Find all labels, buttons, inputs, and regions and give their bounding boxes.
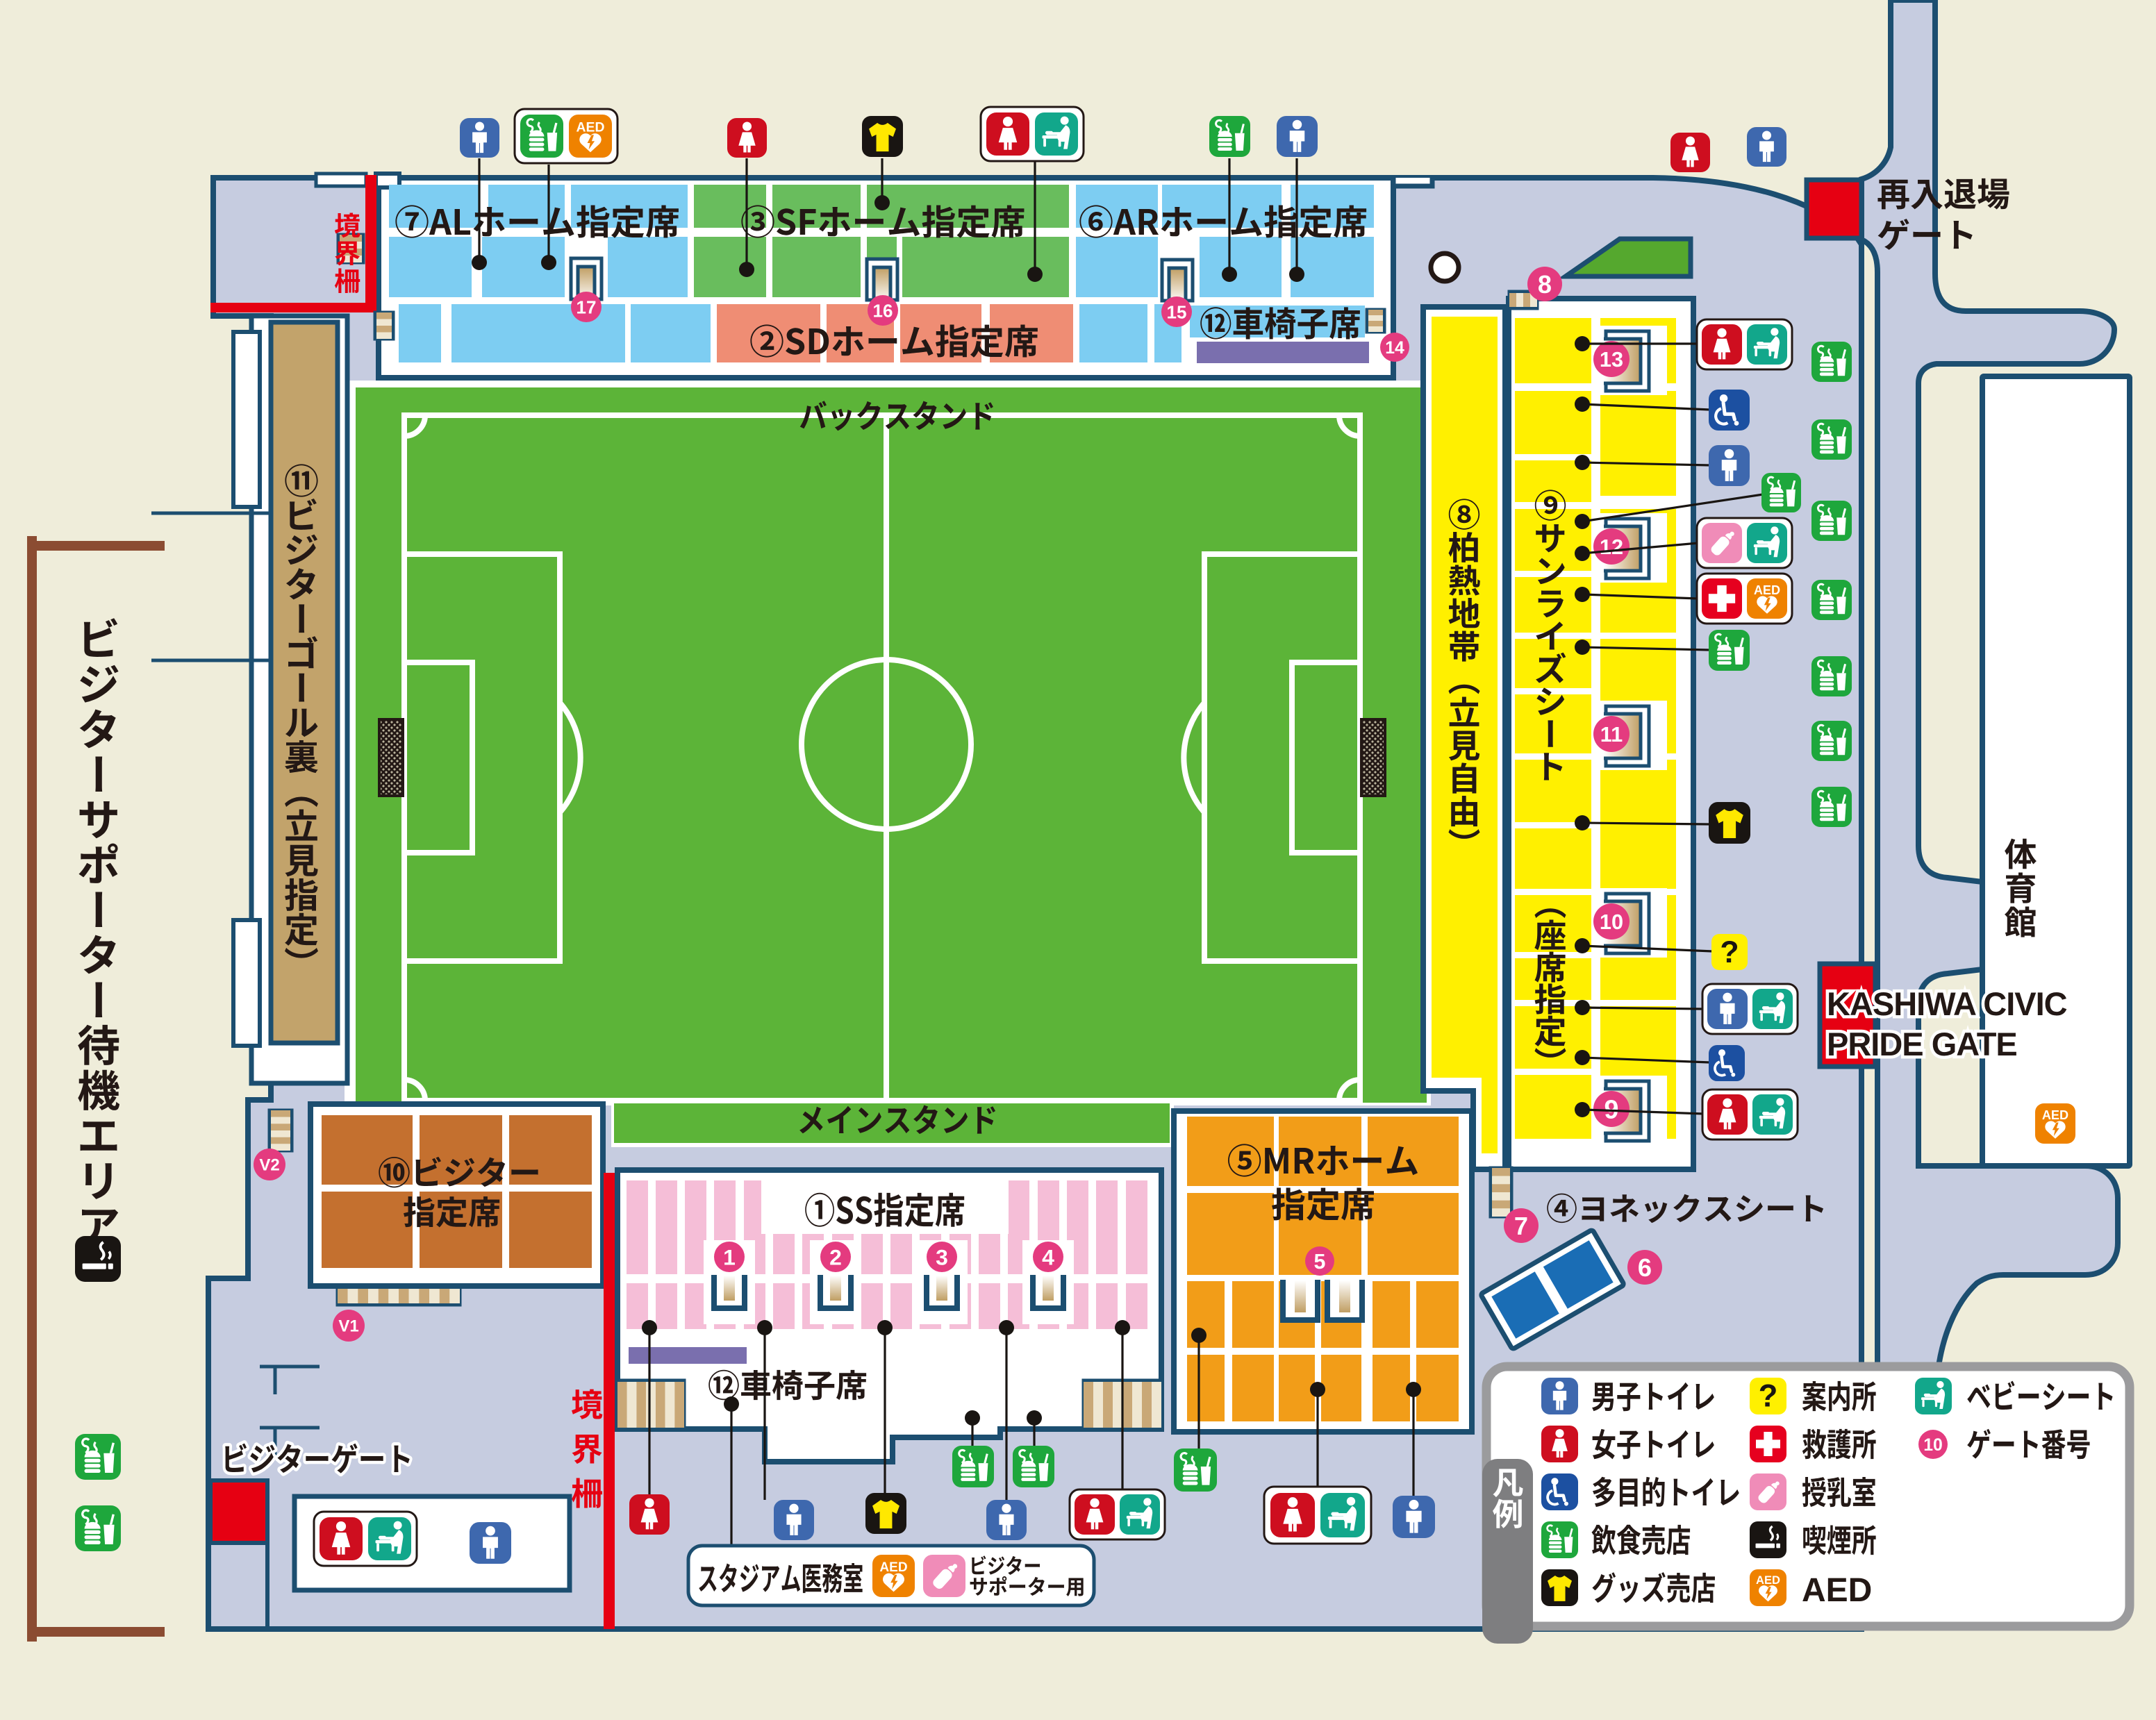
- svg-text:AED: AED: [1756, 1573, 1780, 1587]
- svg-text:AED: AED: [2042, 1108, 2068, 1122]
- svg-text:5: 5: [1314, 1250, 1326, 1274]
- svg-text:10: 10: [1923, 1436, 1943, 1455]
- svg-text:1: 1: [723, 1245, 736, 1270]
- svg-text:14: 14: [1385, 339, 1404, 358]
- svg-text:17: 17: [577, 297, 597, 317]
- svg-text:10: 10: [1600, 910, 1623, 934]
- svg-text:16: 16: [873, 300, 893, 321]
- svg-text:13: 13: [1600, 347, 1623, 371]
- svg-text:4: 4: [1042, 1245, 1054, 1270]
- svg-text:PRIDE GATE: PRIDE GATE: [1827, 1026, 2017, 1062]
- svg-text:AED: AED: [1802, 1572, 1872, 1609]
- svg-text:AED: AED: [577, 119, 605, 135]
- svg-text:7: 7: [1514, 1212, 1528, 1240]
- svg-text:11: 11: [1600, 722, 1623, 746]
- svg-text:2: 2: [829, 1245, 842, 1270]
- svg-text:V1: V1: [338, 1317, 358, 1336]
- svg-text:?: ?: [1759, 1378, 1778, 1414]
- svg-text:AED: AED: [1754, 583, 1780, 597]
- svg-text:12: 12: [1600, 535, 1623, 559]
- svg-text:3: 3: [936, 1245, 948, 1270]
- svg-text:15: 15: [1167, 301, 1187, 322]
- svg-text:AED: AED: [879, 1560, 907, 1575]
- svg-text:?: ?: [1720, 935, 1739, 969]
- svg-text:8: 8: [1538, 270, 1552, 299]
- svg-text:KASHIWA CIVIC: KASHIWA CIVIC: [1827, 985, 2067, 1022]
- svg-text:V2: V2: [259, 1156, 279, 1175]
- svg-text:6: 6: [1638, 1253, 1652, 1282]
